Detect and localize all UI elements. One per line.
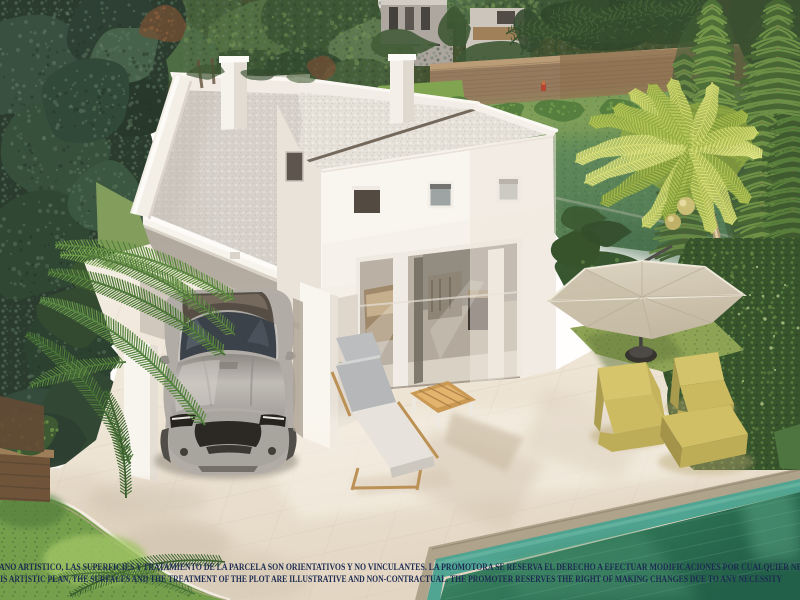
svg-text:THIS ARTISTIC PLAN, THE SURFAC: THIS ARTISTIC PLAN, THE SURFACES AND THE… (0, 574, 782, 585)
svg-text:PLANO ARTISTICO, LAS SUPERFICI: PLANO ARTISTICO, LAS SUPERFICIES Y TRATA… (0, 562, 800, 573)
